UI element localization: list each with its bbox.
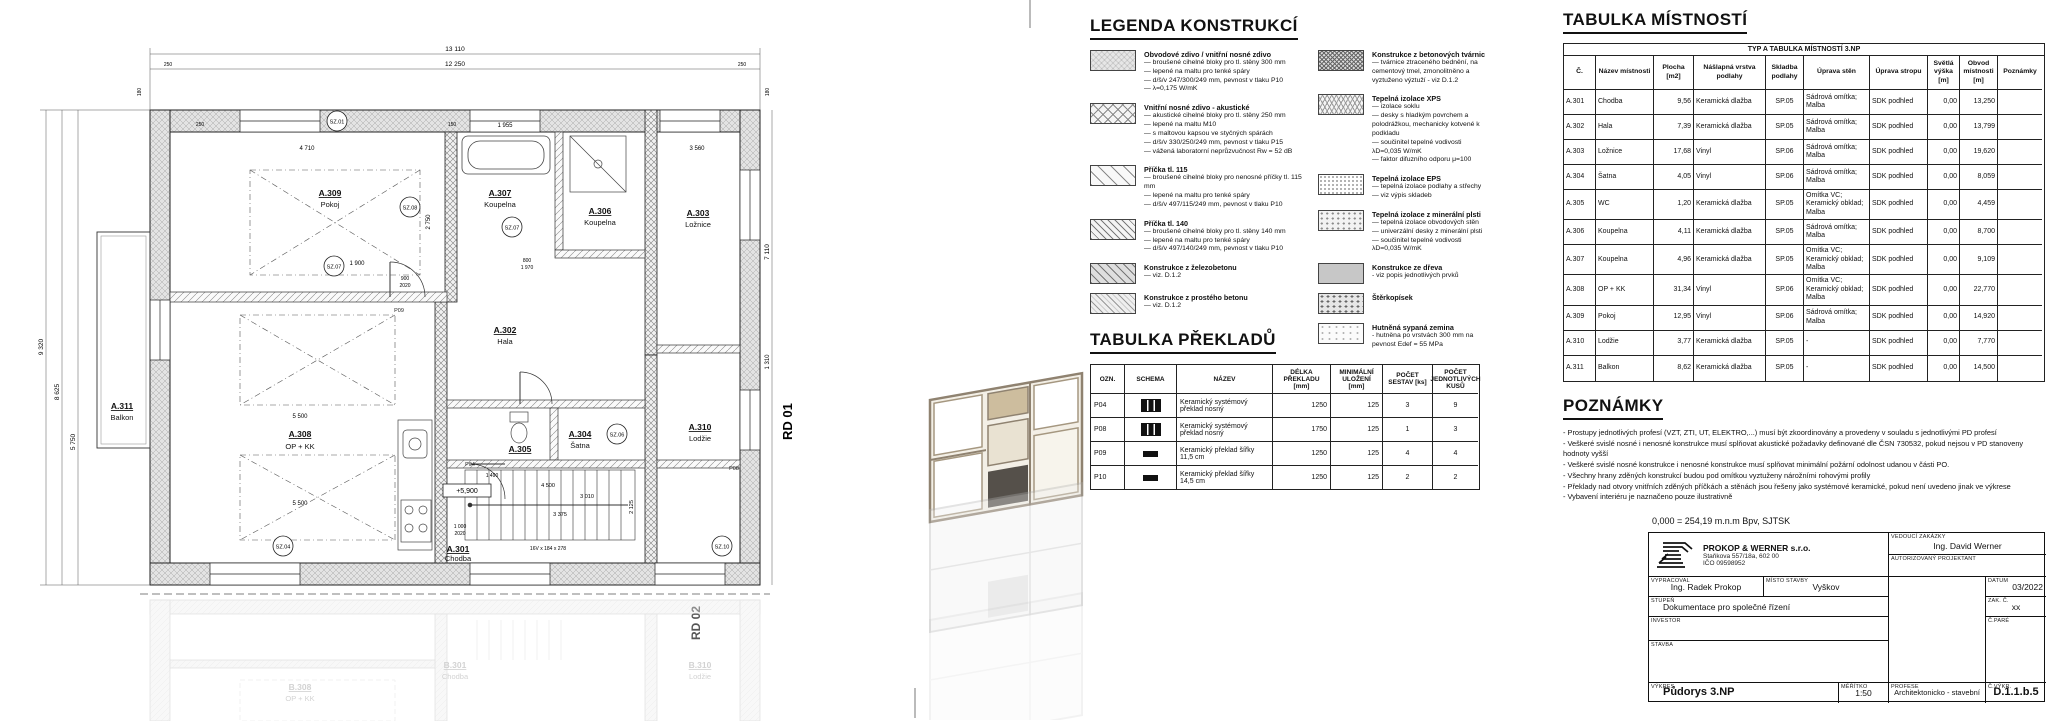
lintel-schema-icon	[1141, 423, 1161, 436]
legend-item: Konstrukce z prostého betonu — viz. D.1.…	[1090, 293, 1308, 314]
blank-cell	[1889, 577, 1986, 683]
legend-item-lines: — tepelná izolace podlahy a střechy — vi…	[1372, 183, 1492, 201]
legend-item-lines: — viz. D.1.2	[1144, 272, 1308, 281]
table-row: A.307 Koupelna 4,96 Keramická dlažba SP.…	[1564, 245, 2044, 275]
note-line: - Všechny hrany zděných konstrukcí budou…	[1563, 471, 2048, 482]
room-table-band: TYP A TABULKA MÍSTNOSTÍ 3.NP	[1564, 44, 2044, 56]
legend-item-title: Obvodové zdivo / vnitřní nosné zdivo	[1144, 50, 1308, 59]
legend-item: Tepelná izolace XPS — izolace soklu — de…	[1318, 94, 1492, 165]
legend-item: Konstrukce z železobetonu — viz. D.1.2	[1090, 263, 1308, 284]
legend-item-lines: — tepelná izolace obvodových stěn — univ…	[1372, 219, 1492, 254]
title-block: PROKOP & WERNER s.r.o. Staňkova 557/18a,…	[1648, 532, 2045, 702]
legend-item-title: Konstrukce ze dřeva	[1372, 263, 1492, 272]
legend-swatch	[1090, 103, 1136, 124]
legend-item-title: Tepelná izolace EPS	[1372, 174, 1492, 183]
legend-item-title: Příčka tl. 140	[1144, 219, 1308, 228]
legend-item: Konstrukce ze dřeva - viz popis jednotli…	[1318, 263, 1492, 284]
legend-swatch	[1318, 94, 1364, 115]
room-table-section: TABULKA MÍSTNOSTÍ TYP A TABULKA MÍSTNOST…	[1563, 10, 2047, 382]
lintel-schema-icon	[1143, 451, 1158, 457]
legend-swatch	[1318, 210, 1364, 231]
elevation-note: 0,000 = 254,19 m.n.m Bpv, SJTSK	[1652, 516, 1790, 526]
table-row: P10 Keramický překlad šířky 14,5 cm 1250…	[1091, 465, 1479, 489]
legend-swatch	[1318, 50, 1364, 71]
scale-cell: MĚŘÍTKO 1:50	[1839, 683, 1889, 703]
note-line: - Prostupy jednotlivých profesí (VZT, ZT…	[1563, 428, 2048, 439]
lintel-table-section: TABULKA PŘEKLADŮ OZN. SCHEMA NÁZEV DÉLKA…	[1090, 330, 1492, 490]
project-lead-value: Ing. David Werner	[1889, 541, 2046, 551]
table-row: A.302 Hala 7,39 Keramická dlažba SP.05 S…	[1564, 115, 2044, 140]
legend-swatch	[1318, 263, 1364, 284]
table-row: A.309 Pokoj 12,95 Vinyl SP.06 Sádrová om…	[1564, 306, 2044, 331]
table-row: P04 Keramický systémový překlad nosný 12…	[1091, 393, 1479, 417]
note-line: - Vybavení interiéru je naznačeno pouze …	[1563, 492, 2048, 503]
drawing-number-value: D.1.1.b.5	[1986, 686, 2046, 698]
legend-item: Štěrkopísek	[1318, 293, 1492, 314]
table-row: P08 Keramický systémový překlad nosný 17…	[1091, 417, 1479, 441]
legend-item-title: Konstrukce z prostého betonu	[1144, 293, 1308, 302]
lintel-schema-icon	[1143, 475, 1158, 481]
project-lead-cell: VEDOUCÍ ZAKÁZKY Ing. David Werner	[1889, 533, 2046, 555]
legend-title: LEGENDA KONSTRUKCÍ	[1090, 16, 1298, 40]
legend-item-title: Konstrukce z betonových tvárnic	[1372, 50, 1492, 59]
note-line: - Překlady nad otvory vnitřních zděných …	[1563, 482, 2048, 493]
date-cell: DATUM 03/2022	[1986, 577, 2046, 597]
legend-item: Příčka tl. 140 — broušené cihelné bloky …	[1090, 219, 1308, 254]
legend-item-title: Příčka tl. 115	[1144, 165, 1308, 174]
notes-title: POZNÁMKY	[1563, 396, 1663, 420]
legend-item-lines: — broušené cihelné bloky pro nenosné pří…	[1144, 174, 1308, 209]
lintel-table-rows: P04 Keramický systémový překlad nosný 12…	[1091, 393, 1479, 489]
building-cell: STAVBA	[1649, 641, 1889, 683]
drawing-name-cell: VÝKRES Půdorys 3.NP	[1649, 683, 1839, 703]
profession-value: Architektonicko - stavební	[1889, 688, 1985, 697]
stage-cell: STUPEŇ Dokumentace pro společné řízení	[1649, 597, 1889, 617]
table-row: A.305 WC 1,20 Keramická dlažba SP.05 Omí…	[1564, 190, 2044, 220]
legend-item-lines: — broušené cihelné bloky pro tl. stěny 3…	[1144, 59, 1308, 94]
investor-cell: INVESTOR	[1649, 617, 1889, 641]
legend-section: LEGENDA KONSTRUKCÍ Obvodové zdivo / vnit…	[1090, 16, 1492, 350]
site-cell: MÍSTO STAVBY Vyškov	[1764, 577, 1889, 597]
note-line: - Veškeré svislé nosné i nenosné konstru…	[1563, 439, 2048, 460]
legend-column-2: Konstrukce z betonových tvárnic — tvárni…	[1318, 50, 1492, 350]
stage-value: Dokumentace pro společné řízení	[1649, 602, 1888, 612]
table-row: A.306 Koupelna 4,11 Keramická dlažba SP.…	[1564, 220, 2044, 245]
company-logo	[1655, 538, 1695, 572]
legend-swatch	[1090, 165, 1136, 186]
table-row: A.304 Šatna 4,05 Vinyl SP.06 Sádrová omí…	[1564, 165, 2044, 190]
legend-item-lines: — broušené cihelné bloky pro tl. stěny 1…	[1144, 228, 1308, 254]
legend-swatch	[1090, 293, 1136, 314]
drawing-number-cell: Č.VÝKR. D.1.1.b.5	[1986, 683, 2046, 703]
legend-item-title: Konstrukce z železobetonu	[1144, 263, 1308, 272]
note-line: - Veškeré svislé nosné konstrukce i neno…	[1563, 460, 2048, 471]
notes-list: - Prostupy jednotlivých profesí (VZT, ZT…	[1563, 428, 2048, 503]
legend-item-lines: — izolace soklu — desky s hladkým povrch…	[1372, 103, 1492, 165]
legend-item-title: Tepelná izolace XPS	[1372, 94, 1492, 103]
lintel-table-title: TABULKA PŘEKLADŮ	[1090, 330, 1276, 354]
legend-item-lines: — akustické cihelné bloky pro tl. stěny …	[1144, 112, 1308, 156]
legend-item-title: Vnitřní nosné zdivo - akustické	[1144, 103, 1308, 112]
company-cell: PROKOP & WERNER s.r.o. Staňkova 557/18a,…	[1649, 533, 1889, 577]
legend-item: Tepelná izolace z minerální plsti — tepe…	[1318, 210, 1492, 254]
table-row: A.308 OP + KK 31,34 Vinyl SP.06 Omítka V…	[1564, 275, 2044, 305]
room-table-header: Č. Název místnosti Plocha [m2] Nášlapná …	[1564, 56, 2044, 90]
authorized-designer-cell: AUTORIZOVANÝ PROJEKTANT	[1889, 555, 2046, 577]
legend-item: Konstrukce z betonových tvárnic — tvárni…	[1318, 50, 1492, 85]
copy-number-cell: Č.PARÉ	[1986, 617, 2046, 683]
drafted-by-cell: VYPRACOVAL Ing. Radek Prokop	[1649, 577, 1764, 597]
company-address: Staňkova 557/18a, 602 00	[1703, 553, 1811, 560]
company-ico: IČO 09598952	[1703, 560, 1811, 567]
notes-section: POZNÁMKY - Prostupy jednotlivých profesí…	[1563, 396, 2048, 503]
legend-swatch	[1090, 219, 1136, 240]
profession-cell: PROFESE Architektonicko - stavební	[1889, 683, 1986, 703]
legend-column-1: Obvodové zdivo / vnitřní nosné zdivo — b…	[1090, 50, 1308, 314]
company-name: PROKOP & WERNER s.r.o.	[1703, 543, 1811, 553]
legend-item-lines: — tvárnice ztraceného bednění, na cement…	[1372, 59, 1492, 85]
table-row: A.301 Chodba 9,56 Keramická dlažba SP.05…	[1564, 90, 2044, 115]
legend-item-title: Tepelná izolace z minerální plsti	[1372, 210, 1492, 219]
drawing-name-value: Půdorys 3.NP	[1649, 686, 1838, 698]
room-table-rows: A.301 Chodba 9,56 Keramická dlažba SP.05…	[1564, 90, 2044, 381]
table-row: A.311 Balkon 8,62 Keramická dlažba SP.05…	[1564, 356, 2044, 381]
lintel-table-header: OZN. SCHEMA NÁZEV DÉLKA PŘEKLADU [mm] MI…	[1091, 365, 1479, 393]
legend-swatch	[1090, 263, 1136, 284]
drawing-sheet: +5,900 A.309 Pokoj A.307 Koupelna A.306 …	[0, 0, 2048, 721]
table-row: P09 Keramický překlad šířky 11,5 cm 1250…	[1091, 441, 1479, 465]
legend-item: Příčka tl. 115 — broušené cihelné bloky …	[1090, 165, 1308, 209]
legend-item-lines: — viz. D.1.2	[1144, 302, 1308, 311]
legend-item: Vnitřní nosné zdivo - akustické — akusti…	[1090, 103, 1308, 156]
table-row: A.303 Ložnice 17,68 Vinyl SP.06 Sádrová …	[1564, 140, 2044, 165]
legend-item: Tepelná izolace EPS — tepelná izolace po…	[1318, 174, 1492, 201]
order-number-cell: ZAK. Č. xx	[1986, 597, 2046, 617]
legend-item: Obvodové zdivo / vnitřní nosné zdivo — b…	[1090, 50, 1308, 94]
room-table: TYP A TABULKA MÍSTNOSTÍ 3.NP Č. Název mí…	[1563, 43, 2045, 382]
legend-swatch	[1318, 293, 1364, 314]
legend-swatch	[1090, 50, 1136, 71]
legend-item-lines: - viz popis jednotlivých prvků	[1372, 272, 1492, 281]
table-row: A.310 Lodžie 3,77 Keramická dlažba SP.05…	[1564, 331, 2044, 356]
room-table-title: TABULKA MÍSTNOSTÍ	[1563, 10, 1747, 34]
legend-item-title: Štěrkopísek	[1372, 293, 1492, 302]
lintel-schema-icon	[1141, 399, 1161, 412]
legend-swatch	[1318, 174, 1364, 195]
lintel-table: OZN. SCHEMA NÁZEV DÉLKA PŘEKLADU [mm] MI…	[1090, 364, 1480, 490]
